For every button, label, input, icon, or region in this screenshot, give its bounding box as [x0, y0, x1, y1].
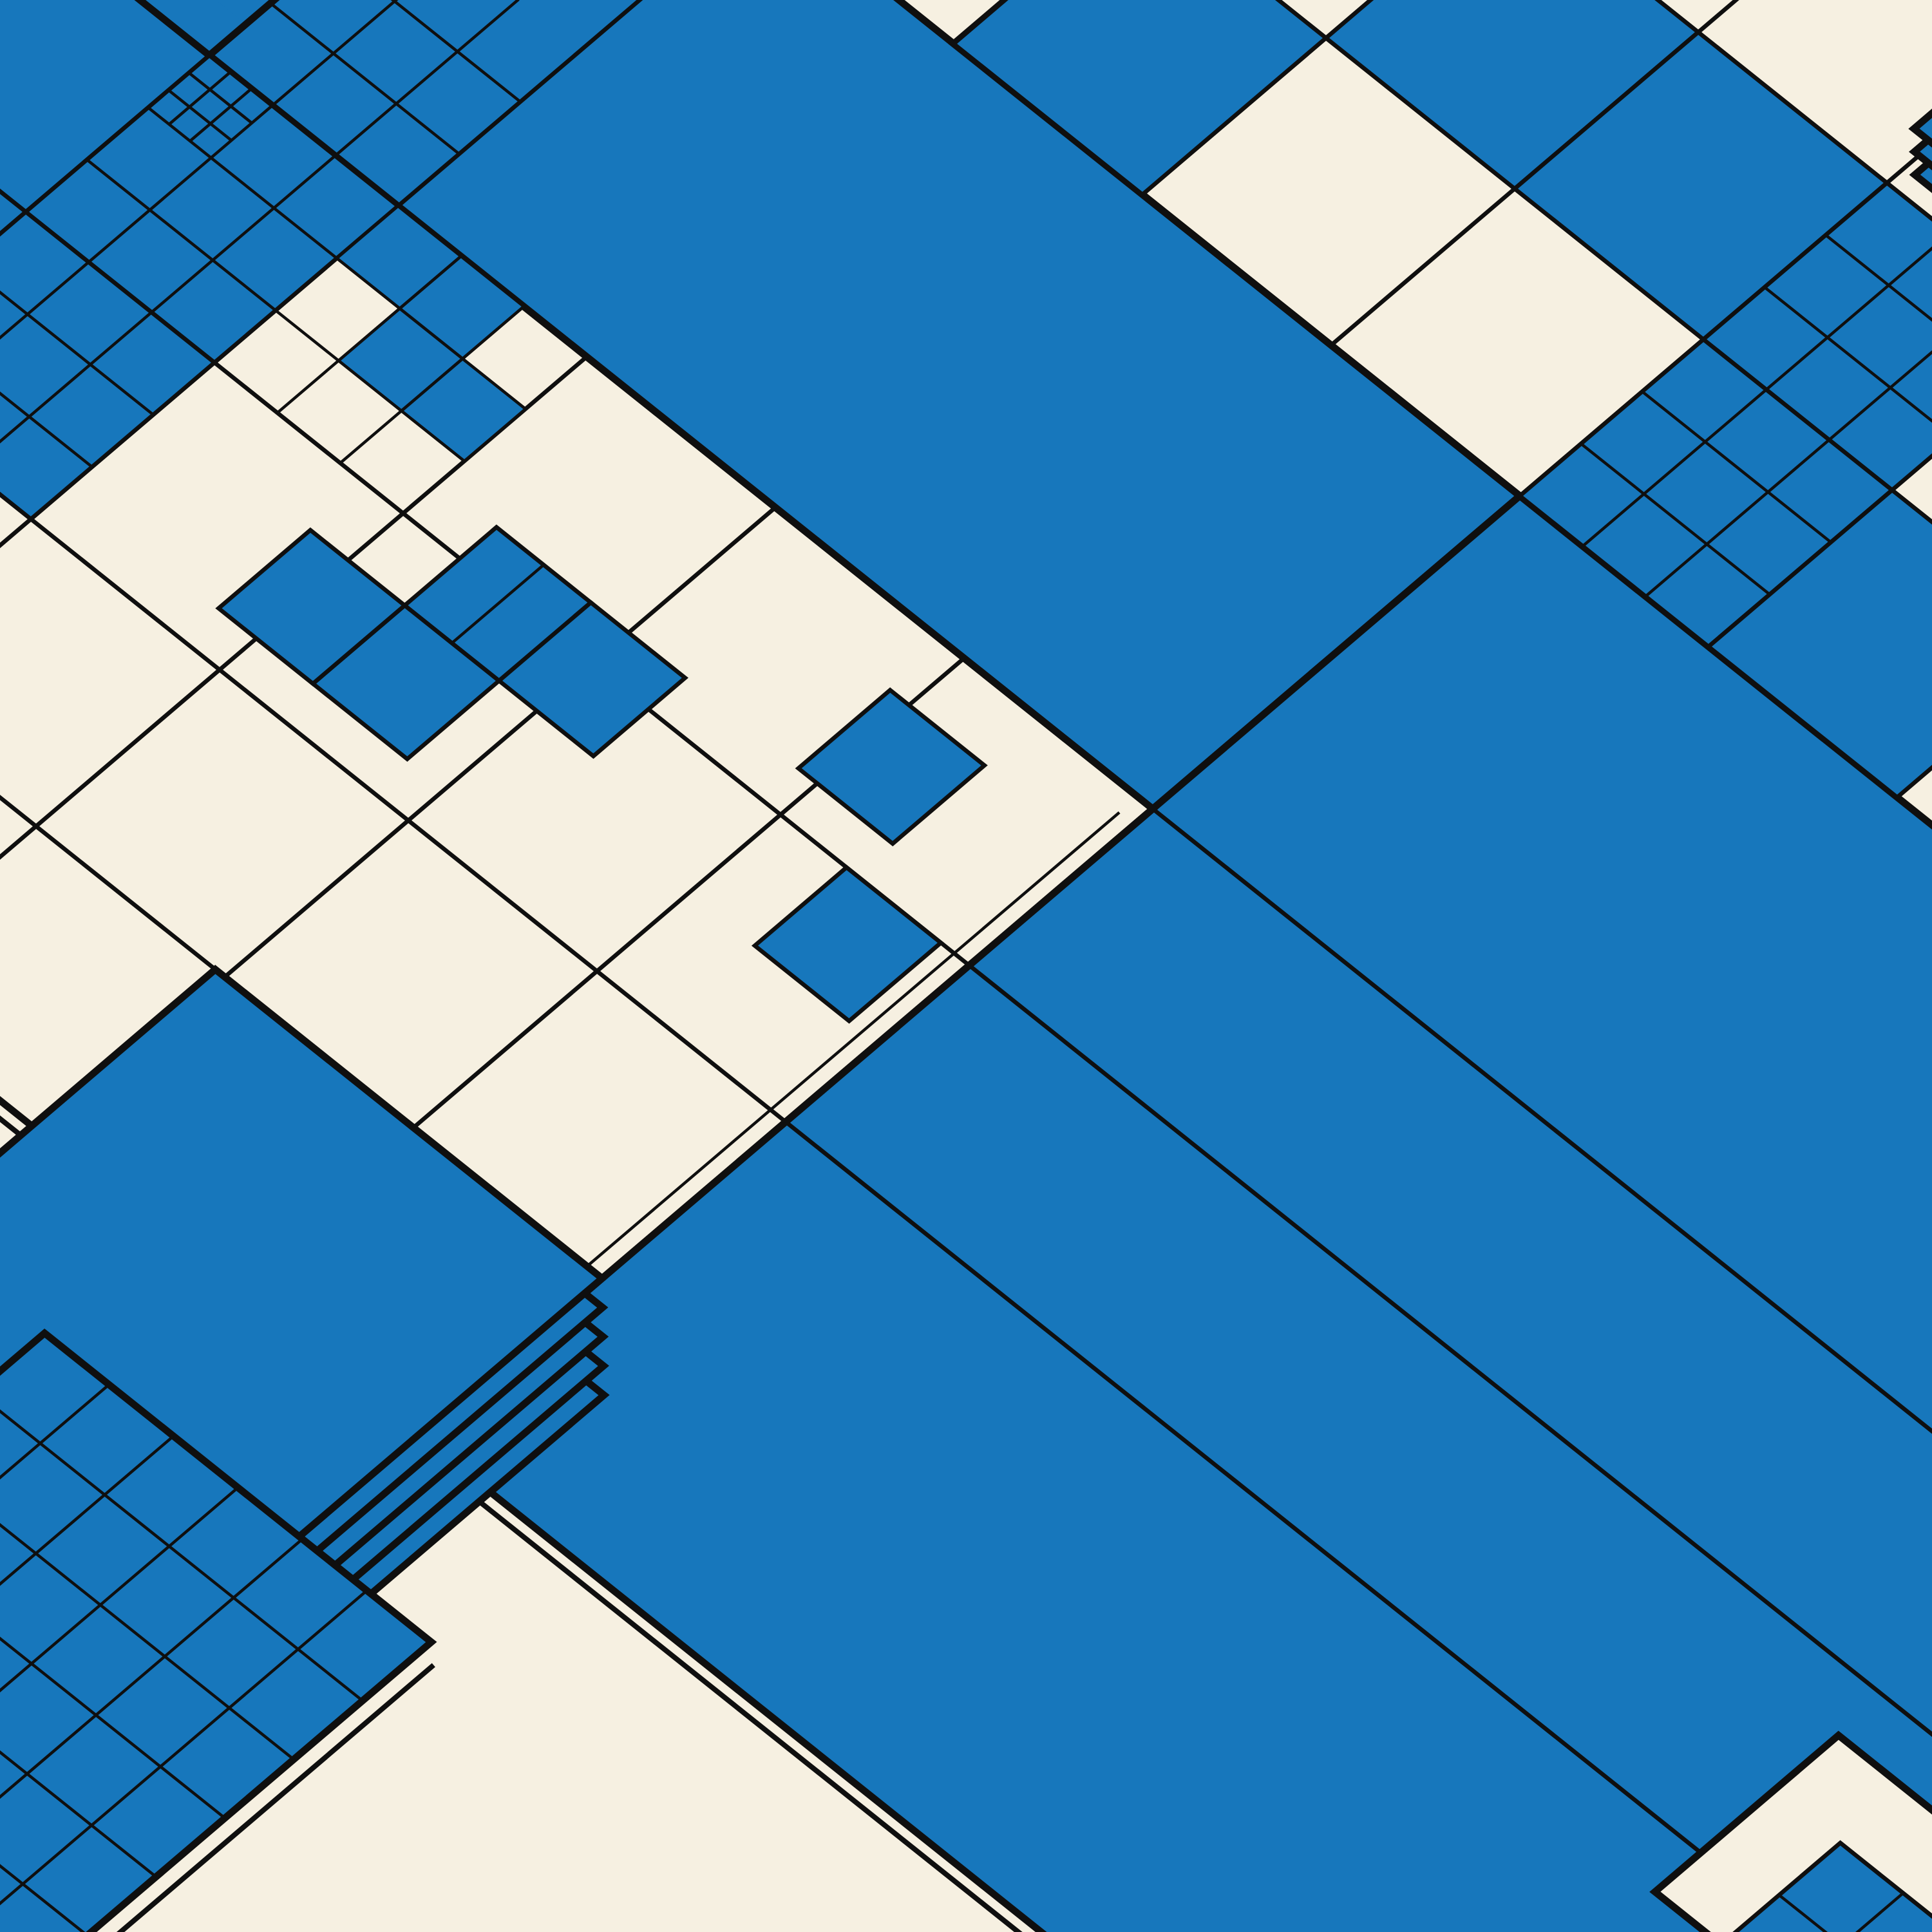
abstract-pattern-stage: [0, 0, 1932, 1932]
rotated-fractal-grid-pattern: [0, 0, 1932, 1932]
